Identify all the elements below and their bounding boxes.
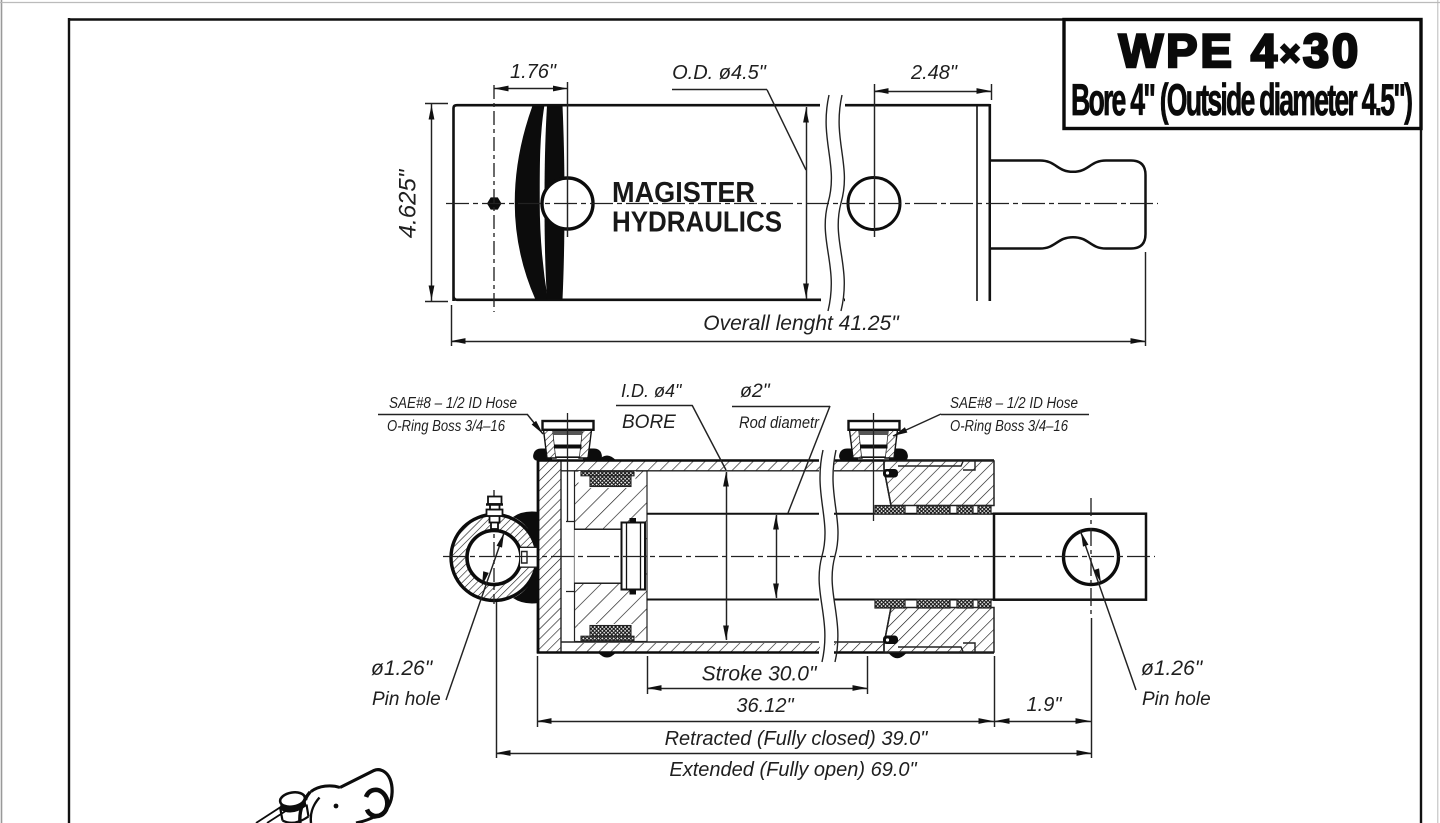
svg-text:Overall lenght 41.25": Overall lenght 41.25" (703, 312, 900, 335)
svg-text:Retracted (Fully closed) 39.0": Retracted (Fully closed) 39.0" (665, 728, 929, 750)
svg-text:Pin hole: Pin hole (372, 689, 441, 710)
svg-text:1.76": 1.76" (510, 61, 557, 83)
svg-text:SAE#8 – 1/2 ID Hose: SAE#8 – 1/2 ID Hose (950, 395, 1078, 412)
svg-text:Bore 4" (Outside diameter 4.5": Bore 4" (Outside diameter 4.5") (1071, 75, 1413, 125)
svg-text:Rod diametr: Rod diametr (739, 413, 820, 432)
svg-text:SAE#8 – 1/2 ID Hose: SAE#8 – 1/2 ID Hose (389, 395, 517, 412)
svg-text:ø1.26": ø1.26" (371, 657, 434, 680)
svg-text:I.D. ø4": I.D. ø4" (621, 381, 683, 401)
svg-text:Extended (Fully open) 69.0": Extended (Fully open) 69.0" (669, 759, 917, 781)
svg-text:2.48": 2.48" (910, 62, 958, 84)
svg-text:ø1.26": ø1.26" (1141, 657, 1204, 680)
svg-text:Stroke 30.0": Stroke 30.0" (702, 663, 818, 686)
svg-text:WPE 4×30: WPE 4×30 (1119, 24, 1361, 77)
svg-text:ø2": ø2" (740, 380, 771, 402)
svg-text:HYDRAULICS: HYDRAULICS (612, 207, 782, 239)
svg-text:BORE: BORE (622, 412, 676, 433)
svg-text:O.D. ø4.5": O.D. ø4.5" (672, 62, 767, 84)
svg-text:1.9": 1.9" (1027, 694, 1063, 716)
svg-text:4.625": 4.625" (395, 168, 422, 238)
svg-text:O-Ring Boss 3/4–16: O-Ring Boss 3/4–16 (950, 418, 1068, 435)
svg-text:O-Ring Boss 3/4–16: O-Ring Boss 3/4–16 (387, 418, 505, 435)
svg-text:Pin hole: Pin hole (1142, 689, 1211, 710)
svg-text:MAGISTER: MAGISTER (612, 177, 755, 209)
svg-text:36.12": 36.12" (736, 695, 794, 717)
